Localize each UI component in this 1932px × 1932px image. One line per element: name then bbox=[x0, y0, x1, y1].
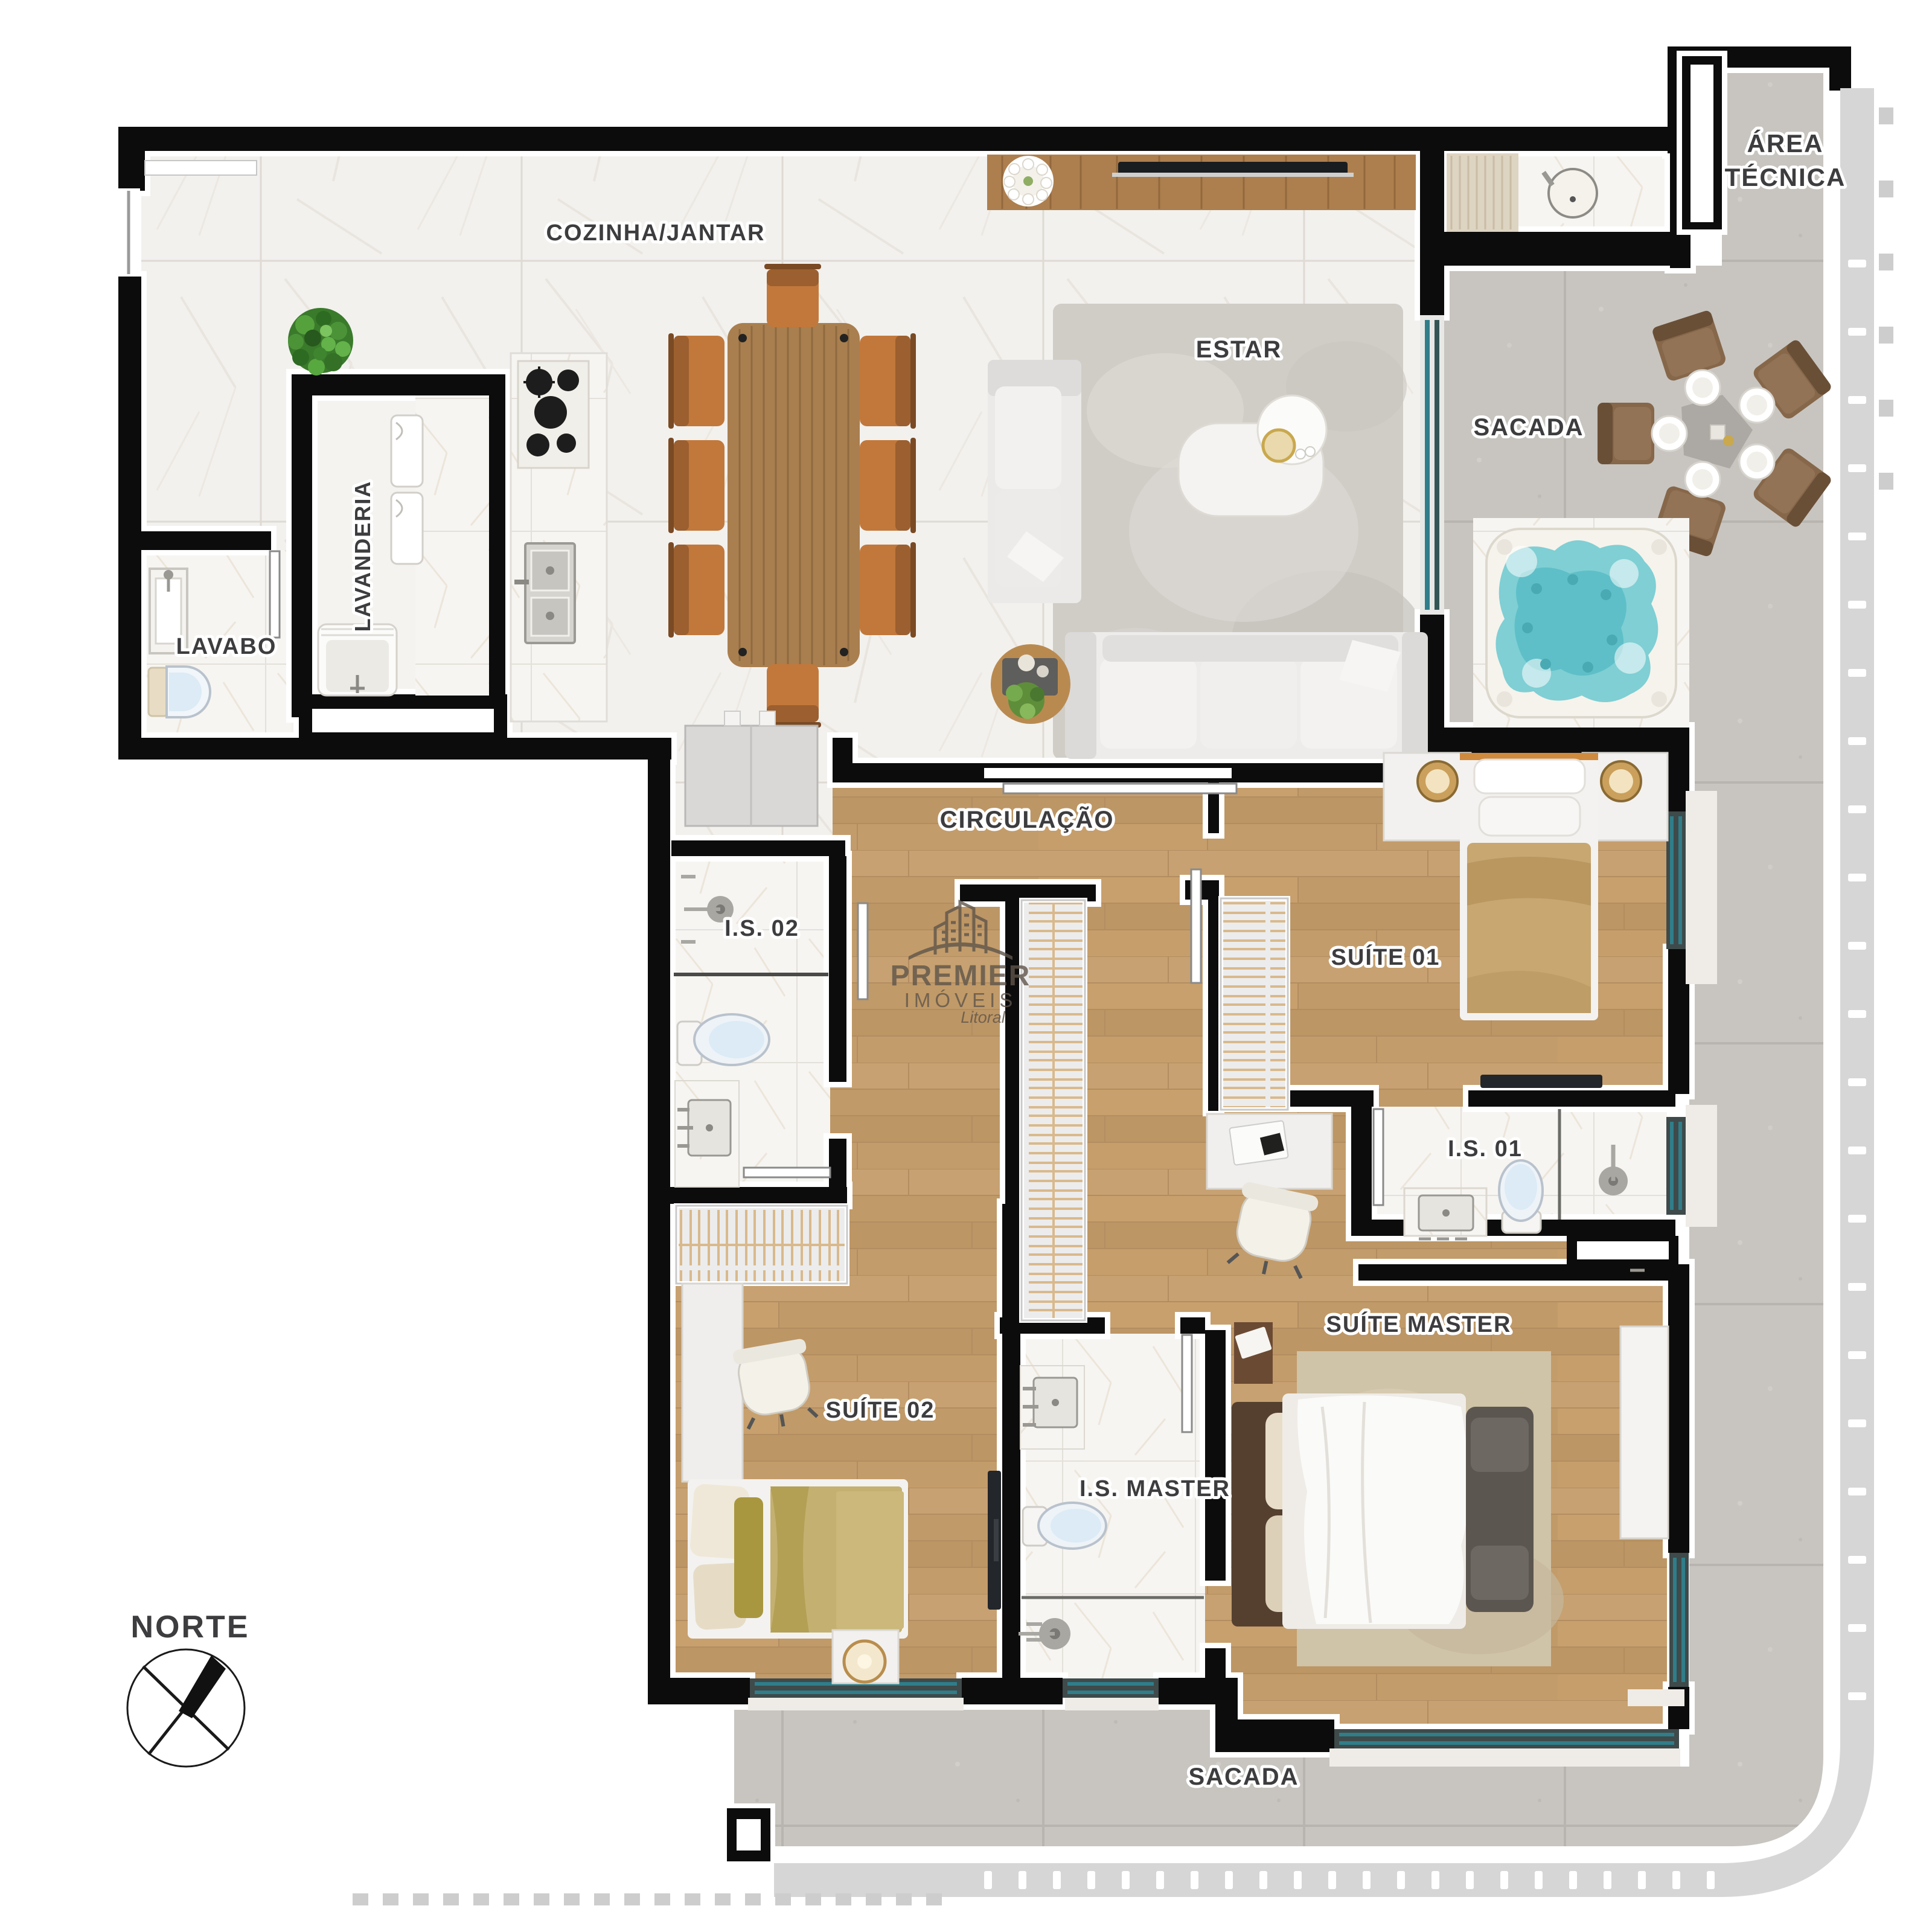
svg-text:I.S. 01: I.S. 01 bbox=[1448, 1136, 1523, 1162]
svg-text:Litoral: Litoral bbox=[961, 1008, 1006, 1026]
svg-text:SACADA: SACADA bbox=[1473, 414, 1584, 441]
svg-text:SACADA: SACADA bbox=[1188, 1764, 1299, 1790]
svg-text:TÉCNICA: TÉCNICA bbox=[1725, 163, 1846, 191]
svg-text:LAVANDERIA: LAVANDERIA bbox=[350, 481, 375, 632]
svg-text:I.S. MASTER: I.S. MASTER bbox=[1080, 1476, 1230, 1502]
svg-text:SUÍTE 02: SUÍTE 02 bbox=[826, 1396, 935, 1423]
svg-text:LAVABO: LAVABO bbox=[176, 634, 277, 659]
svg-text:SUÍTE MASTER: SUÍTE MASTER bbox=[1326, 1311, 1512, 1337]
svg-text:NORTE: NORTE bbox=[131, 1610, 250, 1645]
svg-text:ÁREA: ÁREA bbox=[1747, 129, 1823, 158]
svg-text:SUÍTE 01: SUÍTE 01 bbox=[1331, 944, 1441, 970]
svg-text:I.S. 02: I.S. 02 bbox=[724, 916, 799, 941]
svg-text:COZINHA/JANTAR: COZINHA/JANTAR bbox=[546, 220, 766, 246]
svg-text:CIRCULAÇÃO: CIRCULAÇÃO bbox=[940, 805, 1115, 833]
svg-text:PREMIER: PREMIER bbox=[891, 960, 1031, 992]
svg-text:ESTAR: ESTAR bbox=[1196, 336, 1282, 363]
